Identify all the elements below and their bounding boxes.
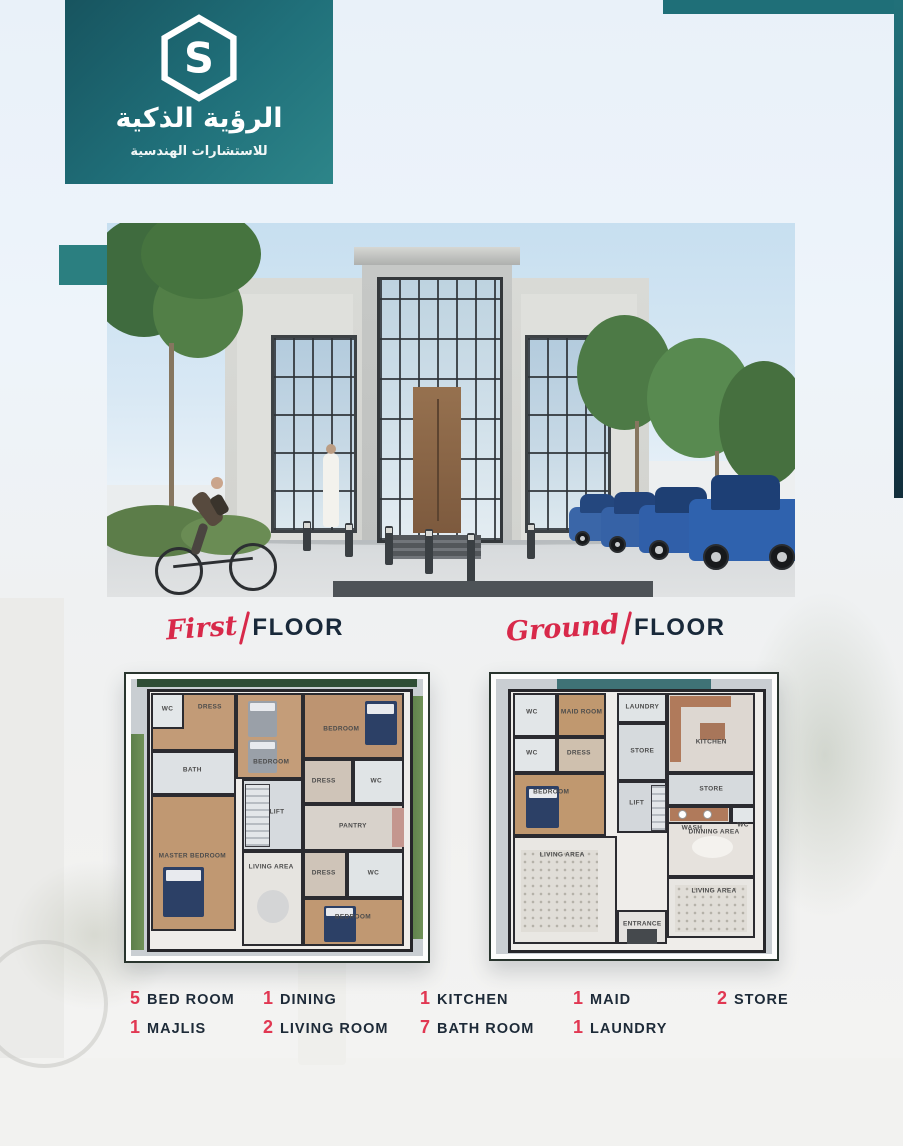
ground-floor-canvas: WC MAID ROOM LAUNDRY KITCHEN WC DRESS ST… xyxy=(496,679,772,954)
room-label: STORE xyxy=(630,747,654,754)
dining-table xyxy=(692,836,733,858)
stat-label: BATH ROOM xyxy=(437,1021,534,1037)
stat-dining: 1DINING xyxy=(263,988,337,1009)
stat-majlis: 1MAJLIS xyxy=(130,1017,206,1038)
pantry-counter xyxy=(392,808,404,847)
left-wing-window xyxy=(271,335,357,533)
bollard-light xyxy=(303,521,311,551)
room-label: STORE xyxy=(699,786,723,793)
entrance-mat xyxy=(627,929,657,944)
ground-floor-plan: WC MAID ROOM LAUNDRY KITCHEN WC DRESS ST… xyxy=(489,672,779,961)
room-label: KITCHEN xyxy=(696,739,727,746)
red-slash xyxy=(621,611,632,645)
room-label: BEDROOM xyxy=(323,725,359,732)
cyclist-head xyxy=(211,477,223,489)
bollard-light xyxy=(385,526,393,565)
stat-label: DINING xyxy=(280,992,337,1008)
logo-monogram: S xyxy=(184,33,214,82)
room-label: BEDROOM xyxy=(335,914,371,921)
stat-count: 1 xyxy=(573,988,583,1008)
left-teal-accent-box xyxy=(59,245,107,285)
brand-subtitle-arabic: للاستشارات الهندسية xyxy=(65,144,333,159)
floor-word: FLOOR xyxy=(634,614,726,642)
bollard-light xyxy=(345,523,353,557)
stat-count: 1 xyxy=(573,1017,583,1037)
stat-label: MAID xyxy=(590,992,631,1008)
poster-page: S الرؤية الذكية للاستشارات الهندسية xyxy=(0,0,903,1146)
stat-laundry: 1LAUNDRY xyxy=(573,1017,667,1038)
sink xyxy=(678,810,687,819)
stat-label: BED ROOM xyxy=(147,992,235,1008)
bollard-light xyxy=(527,523,535,559)
stat-count: 2 xyxy=(263,1017,273,1037)
hexagon-s-logo-icon: S xyxy=(159,14,239,102)
first-floor-plan: WC DRESS BATH BEDROOM BEDROOM DRESS WC L… xyxy=(124,672,430,963)
villa-photo xyxy=(107,223,795,597)
floor-word: FLOOR xyxy=(252,614,344,642)
room-label: LIVING AREA xyxy=(540,852,585,859)
stairs xyxy=(651,785,667,831)
room-label: LIFT xyxy=(629,799,644,806)
stat-bedroom: 5BED ROOM xyxy=(130,988,235,1009)
stat-label: MAJLIS xyxy=(147,1021,206,1037)
pool-edge xyxy=(557,679,712,689)
room-label: DRESS xyxy=(312,778,336,785)
stat-label: LIVING ROOM xyxy=(280,1021,388,1037)
room-label: WC xyxy=(526,709,537,716)
brand-title-arabic: الرؤية الذكية xyxy=(65,103,333,134)
room-label: DRESS xyxy=(198,703,222,710)
room-label: WC xyxy=(368,869,379,876)
top-teal-bar xyxy=(663,0,903,14)
round-rug xyxy=(257,890,289,923)
stat-count: 5 xyxy=(130,988,140,1008)
dark-walkway xyxy=(333,581,653,597)
faded-pavement-band xyxy=(0,1058,903,1146)
room-label: ENTRANCE xyxy=(623,920,662,927)
room-label: BEDROOM xyxy=(533,788,569,795)
stat-label: STORE xyxy=(734,992,789,1008)
first-script-word: First xyxy=(165,610,238,646)
sink xyxy=(703,810,712,819)
stairs xyxy=(245,784,270,847)
room-label: LAUNDRY xyxy=(625,703,659,710)
room-label: DRESS xyxy=(312,869,336,876)
stat-count: 7 xyxy=(420,1017,430,1037)
room-label: PANTRY xyxy=(339,822,367,829)
room-label: DRESS xyxy=(567,750,591,757)
stat-count: 1 xyxy=(263,988,273,1008)
stat-bathroom: 7BATH ROOM xyxy=(420,1017,534,1038)
room-label: LIVING AREA xyxy=(692,887,737,894)
brand-banner: S الرؤية الذكية للاستشارات الهندسية xyxy=(65,0,333,184)
garden-strip-left xyxy=(131,734,144,950)
kitchen-island xyxy=(700,723,725,740)
stat-livingroom: 2LIVING ROOM xyxy=(263,1017,389,1038)
first-floor-heading: First FLOOR xyxy=(140,610,370,646)
stat-maid: 1MAID xyxy=(573,988,631,1009)
room-label: BATH xyxy=(183,767,202,774)
first-floor-canvas: WC DRESS BATH BEDROOM BEDROOM DRESS WC L… xyxy=(131,679,423,956)
stat-count: 1 xyxy=(130,1017,140,1037)
entrance-door xyxy=(413,387,461,533)
stat-count: 2 xyxy=(717,988,727,1008)
stat-store: 2STORE xyxy=(717,988,789,1009)
bed xyxy=(365,701,397,745)
red-slash xyxy=(239,611,250,645)
room-label: LIVING AREA xyxy=(249,864,294,871)
stat-count: 1 xyxy=(420,988,430,1008)
bed xyxy=(248,701,277,737)
bed xyxy=(248,740,277,773)
stat-label: KITCHEN xyxy=(437,992,508,1008)
bicycle-wheel xyxy=(229,543,277,591)
room-label: MAID ROOM xyxy=(561,709,602,716)
room-label: LIFT xyxy=(270,808,285,815)
room-label: WC xyxy=(526,750,537,757)
room-label: BEDROOM xyxy=(253,759,289,766)
person-in-white xyxy=(323,453,339,527)
parked-car-front xyxy=(689,499,795,561)
bollard-light xyxy=(425,529,433,574)
room-label: MASTER BEDROOM xyxy=(159,853,226,860)
bollard-light xyxy=(467,533,475,583)
room-label: DINNING AREA xyxy=(689,828,740,835)
room-label: WC xyxy=(162,706,173,713)
hedge-top xyxy=(137,679,417,687)
tower-parapet xyxy=(354,247,520,265)
stat-kitchen: 1KITCHEN xyxy=(420,988,508,1009)
ground-script-word: Ground xyxy=(505,609,620,648)
stat-label: LAUNDRY xyxy=(590,1021,667,1037)
bed xyxy=(163,867,204,917)
kitchen-counter xyxy=(670,696,681,762)
bed xyxy=(324,906,356,942)
right-teal-strip xyxy=(894,0,903,498)
room-label: WC xyxy=(371,778,382,785)
patterned-rug xyxy=(521,850,598,933)
ground-floor-heading: Ground FLOOR xyxy=(498,610,733,646)
